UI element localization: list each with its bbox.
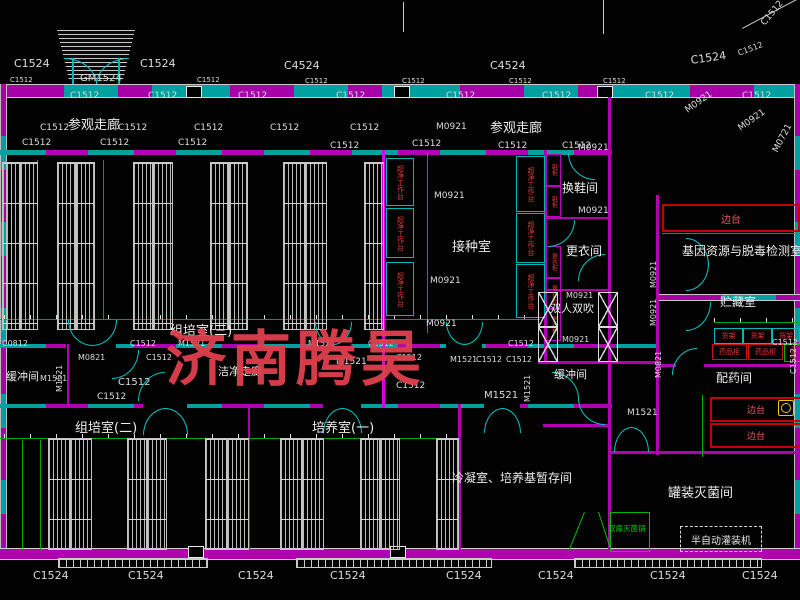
room-label-inoculation: 接种室 [452, 241, 491, 254]
dim-label: C1512 [412, 140, 441, 149]
dim-label: C1524 [14, 58, 50, 69]
dim-label: C1512 [40, 124, 69, 133]
clean-bench-label: 超净工作台 [397, 216, 404, 251]
culture-rack [205, 438, 227, 550]
dim-label: M0821 [78, 354, 105, 362]
clean-bench: 超净工作台 [516, 213, 545, 263]
clean-bench: 超净工作台 [386, 208, 414, 258]
culture-rack [283, 162, 305, 330]
culture-rack [227, 438, 249, 550]
room-label-visitor-corridor: 参观走廊 [490, 122, 542, 135]
dim-label: M0921 [578, 144, 609, 153]
dim-label: C1512 [402, 78, 425, 85]
door-arc [578, 254, 605, 281]
room-label-gene-lab: 基因资源与脱毒检测室 [682, 245, 800, 257]
cad-floor-plan: 超净工作台 超净工作台 超净工作台 超净工作台 超净工作台 超净工作台 鞋柜 鞋… [0, 0, 800, 600]
room-label-culture-1: 培养室(一) [312, 422, 374, 435]
shelf-label: 货架 [751, 333, 765, 340]
dim-label: C1512 [22, 139, 51, 148]
dim-label: C1512 [772, 339, 798, 347]
room-label-storage: 贮藏室 [720, 296, 756, 308]
dim-label: C1512 [336, 92, 365, 101]
dim-label: M1521 [484, 391, 518, 401]
dim-label: C1512 [148, 92, 177, 101]
room-label-condensation: 冷凝室、培养基暂存间 [452, 472, 572, 484]
dim-label: C1512 [742, 92, 771, 101]
door-arc [672, 348, 697, 375]
side-bench: 边台 [662, 204, 800, 232]
dim-label: M0921 [430, 277, 461, 286]
clean-bench-label: 超净工作台 [397, 165, 404, 200]
room-label-buffer-left: 缓冲间 [6, 371, 39, 382]
dimension-line [427, 152, 428, 333]
dimension-line [714, 322, 799, 323]
dim-label: M0721 [772, 123, 794, 154]
dim-label: C1512 [118, 124, 147, 133]
side-bench-label: 边台 [747, 429, 765, 442]
room-label-shoe-change: 换鞋间 [562, 182, 598, 194]
culture-rack [360, 438, 380, 550]
storage-shelf: 货架 [714, 328, 743, 344]
door-arc [631, 427, 649, 452]
dim-label: C1512 [506, 356, 532, 364]
dim-label: C1512 [197, 77, 220, 84]
dim-label: C1512 [238, 92, 267, 101]
culture-rack [302, 438, 324, 550]
air-shower-box [598, 327, 618, 362]
culture-rack [57, 162, 76, 330]
dim-label: C1524 [33, 570, 69, 581]
door-arc [686, 302, 711, 331]
dim-label: M0921 [650, 299, 658, 326]
culture-rack [127, 438, 147, 550]
door-frame [186, 86, 202, 98]
door-arc [686, 264, 709, 291]
door-arc [68, 320, 93, 346]
culture-rack [133, 162, 153, 330]
storage-shelf: 货架 [743, 328, 772, 344]
dim-label: C1512 [130, 340, 156, 348]
room-label-visitor-corridor: 参观走廊 [68, 119, 120, 132]
clothes-cabinet-label: 更衣柜 [551, 253, 557, 271]
door-arc [568, 153, 595, 180]
dim-label: C1512 [760, 0, 786, 28]
clean-bench-label: 超净工作台 [527, 167, 534, 202]
dim-label: C1512 [446, 92, 475, 101]
dim-label: C0812 [2, 340, 28, 348]
dimension-line [702, 395, 703, 457]
dim-label: M0921 [737, 108, 767, 133]
dim-label: C1512 [508, 340, 534, 348]
reference-line [403, 2, 404, 32]
clean-bench-label: 超净工作台 [397, 272, 404, 307]
shelf-label: 货架 [722, 333, 736, 340]
culture-rack [153, 162, 173, 330]
side-bench-label: 边台 [721, 211, 741, 226]
culture-rack [147, 438, 167, 550]
sink-icon [778, 400, 794, 416]
medicine-cabinet-label: 药品柜 [719, 349, 740, 356]
door-arc [92, 320, 117, 346]
dim-label: C4524 [284, 60, 320, 71]
medicine-cabinet-label: 药品柜 [755, 349, 776, 356]
culture-rack [380, 438, 400, 550]
dim-label: C1524 [742, 570, 778, 581]
clean-corridor-bottom-wall [0, 404, 612, 408]
door-arc [165, 408, 188, 435]
dim-label: C1512 [350, 124, 379, 133]
dim-label: C1512 [498, 142, 527, 151]
culture-rack [305, 162, 327, 330]
dim-label: C1524 [140, 58, 176, 69]
wall-hatch [58, 558, 208, 568]
shoe-cabinet-label: 鞋柜 [551, 164, 557, 176]
culture-rack [76, 162, 95, 330]
door-arc [143, 408, 166, 435]
dim-label: C1512 [737, 41, 764, 57]
shoe-cabinet: 鞋柜 [546, 154, 561, 186]
dim-label: C1524 [330, 570, 366, 581]
dim-label: C1524 [690, 50, 727, 66]
room-label-clothes-change: 更衣间 [566, 245, 602, 257]
door-arc [614, 427, 632, 452]
dim-label: C1512 [70, 92, 99, 101]
dim-label: C1512 [100, 139, 129, 148]
clean-bench: 超净工作台 [386, 262, 414, 316]
dim-label: C1512 [542, 92, 571, 101]
watermark: 济南腾昊 [166, 330, 426, 390]
door-frame [188, 546, 204, 558]
culture-rack [280, 438, 302, 550]
sterilizer-door-swing [568, 512, 585, 551]
dim-label: C1524 [238, 570, 274, 581]
room-label-tissue-culture-2: 组培室(二) [75, 422, 137, 435]
dim-label: M0921 [434, 192, 465, 201]
dimension-line [40, 440, 41, 550]
side-bench: 边台 [710, 423, 800, 448]
dim-label: C1512 [509, 78, 532, 85]
reference-line [603, 0, 604, 34]
culture-rack [70, 438, 92, 550]
dim-label: M0821 [655, 351, 663, 378]
clothes-cabinet: 更衣柜 [546, 246, 561, 278]
double-door-sterilizer-label: 双扉灭菌锅 [608, 525, 646, 533]
dim-label: M1521 [627, 409, 658, 418]
dim-label: C1512 [305, 78, 328, 85]
air-shower-box [598, 292, 618, 327]
culture-rack [2, 162, 20, 330]
dim-label: C1512 [118, 378, 150, 388]
door-arc [502, 408, 521, 433]
door-arc [578, 398, 605, 425]
side-bench-label: 边台 [747, 403, 765, 416]
medicine-cabinet: 药品柜 [712, 344, 747, 360]
shoe-cabinet-label: 鞋柜 [551, 196, 557, 208]
dim-label: M1521 [450, 356, 477, 364]
room-label-dispensary: 配药间 [716, 372, 752, 384]
clean-bench: 超净工作台 [516, 156, 545, 212]
wall [67, 344, 69, 406]
dim-label: C1512 [603, 78, 626, 85]
dim-label: C1524 [128, 570, 164, 581]
door-arc [484, 408, 503, 433]
dimension-line [22, 440, 23, 550]
clean-bench-label: 超净工作台 [527, 221, 534, 256]
dim-label: C1512 [178, 139, 207, 148]
dim-label: M0921 [578, 207, 609, 216]
clean-bench-label: 超净工作台 [527, 274, 534, 309]
dim-label: M0921 [566, 292, 593, 300]
room-label-air-shower: 双人双吹 [550, 303, 594, 314]
wall-hatch [574, 558, 762, 568]
door-arc [112, 350, 139, 379]
filling-machine: 半自动灌装机 [680, 526, 762, 552]
dim-label: M0921 [436, 123, 467, 132]
dim-label: C1512 [270, 124, 299, 133]
culture-rack [48, 438, 70, 550]
filling-machine-label: 半自动灌装机 [691, 532, 751, 547]
dimension-ticks [714, 318, 799, 322]
dim-label: C1524 [650, 570, 686, 581]
dim-label: M1521 [524, 375, 532, 402]
shoe-cabinet: 鞋柜 [546, 186, 561, 217]
dim-label: C1512 [10, 77, 33, 84]
room-label-canning: 罐装灭菌间 [668, 487, 733, 500]
door-arc [548, 220, 575, 247]
door-frame [394, 86, 410, 98]
dim-label: GM1524 [80, 74, 122, 84]
room-label-buffer-right: 缓冲间 [554, 369, 587, 380]
dim-label: C1512 [330, 142, 359, 151]
air-shower-box [538, 327, 558, 362]
wall [545, 217, 610, 219]
culture-rack [436, 438, 459, 550]
dim-label: C1512 [790, 348, 798, 374]
culture-rack [364, 162, 384, 330]
dim-label: M1521 [40, 375, 67, 383]
dim-label: M0921 [562, 336, 589, 344]
dim-label: M0921 [426, 320, 457, 329]
dim-label: C1512 [97, 393, 126, 402]
dim-label: C1512 [194, 124, 223, 133]
dim-label: C1512 [476, 356, 502, 364]
dim-label: C1524 [538, 570, 574, 581]
dimension-line [662, 233, 798, 234]
culture-rack [229, 162, 248, 330]
dim-label: C4524 [490, 60, 526, 71]
clean-bench: 超净工作台 [386, 158, 414, 206]
dim-label: C1512 [645, 92, 674, 101]
dim-label: M0921 [650, 261, 658, 288]
culture-rack [210, 162, 229, 330]
culture-rack [20, 162, 38, 330]
door-arc [464, 322, 483, 345]
dim-label: C1524 [446, 570, 482, 581]
wall-hatch [296, 558, 492, 568]
dimension-line [103, 160, 104, 320]
